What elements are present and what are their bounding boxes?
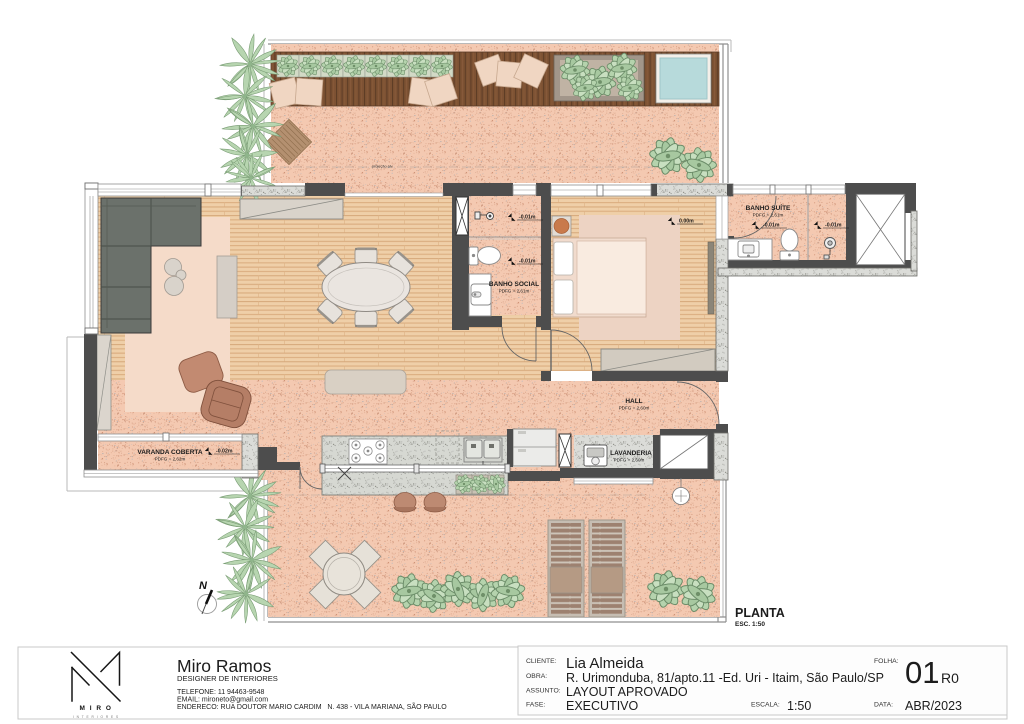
- svg-text:Lia Almeida: Lia Almeida: [566, 655, 644, 672]
- svg-text:PDFG = 2,61m: PDFG = 2,61m: [753, 213, 784, 218]
- svg-text:ESC. 1:50: ESC. 1:50: [735, 621, 765, 628]
- svg-text:-0.01m: -0.01m: [763, 223, 780, 229]
- svg-text:PLANTA: PLANTA: [735, 606, 785, 620]
- svg-text:ABR/2023: ABR/2023: [905, 699, 962, 713]
- svg-text:-0.02m: -0.02m: [216, 449, 233, 455]
- svg-text:TELEFONE: 11 94463-9548: TELEFONE: 11 94463-9548: [177, 689, 265, 696]
- svg-text:01: 01: [905, 655, 939, 690]
- svg-text:-0.01m: -0.01m: [519, 215, 536, 221]
- svg-text:BANHO SUÍTE: BANHO SUÍTE: [746, 203, 791, 212]
- svg-text:PDFG = 2,60m: PDFG = 2,60m: [619, 406, 650, 411]
- svg-text:projeção alv: projeção alv: [372, 165, 393, 169]
- svg-text:ASSUNTO:: ASSUNTO:: [526, 688, 561, 695]
- svg-text:BANHO SOCIAL: BANHO SOCIAL: [489, 281, 539, 288]
- svg-text:DESIGNER DE INTERIORES: DESIGNER DE INTERIORES: [177, 674, 278, 683]
- svg-text:EMAIL: mironeto@gmail.com: EMAIL: mironeto@gmail.com: [177, 697, 268, 704]
- svg-text:R. Urimonduba, 81/apto.11 -Ed.: R. Urimonduba, 81/apto.11 -Ed. Uri - Ita…: [566, 671, 884, 685]
- svg-text:CLIENTE:: CLIENTE:: [526, 658, 557, 665]
- svg-text:1:50: 1:50: [787, 699, 811, 713]
- svg-text:FASE:: FASE:: [526, 702, 545, 709]
- svg-text:OBRA:: OBRA:: [526, 673, 547, 680]
- svg-text:ENDERECO: RUA DOUTOR MARIO CAR: ENDERECO: RUA DOUTOR MARIO CARDIM N. 438…: [177, 702, 447, 711]
- svg-text:LAVANDERIA: LAVANDERIA: [610, 450, 652, 457]
- svg-text:LAYOUT APROVADO: LAYOUT APROVADO: [566, 685, 688, 699]
- svg-text:-0.01m: -0.01m: [519, 259, 536, 265]
- svg-text:FOLHA:: FOLHA:: [874, 658, 899, 665]
- svg-text:R0: R0: [941, 670, 959, 686]
- svg-text:-0.01m: -0.01m: [825, 223, 842, 229]
- svg-text:M I R O: M I R O: [80, 705, 113, 712]
- svg-text:EXECUTIVO: EXECUTIVO: [566, 699, 639, 713]
- svg-text:PDFG = 2,62m: PDFG = 2,62m: [155, 457, 186, 462]
- svg-text:Miro Ramos: Miro Ramos: [177, 656, 272, 676]
- svg-text:0.00m: 0.00m: [679, 219, 694, 225]
- svg-text:I N T E R I O R E S: I N T E R I O R E S: [73, 715, 119, 719]
- svg-text:HALL: HALL: [625, 398, 642, 405]
- svg-text:PDFG = 2,61m: PDFG = 2,61m: [499, 289, 530, 294]
- svg-text:DATA:: DATA:: [874, 702, 893, 709]
- svg-text:PDFG = 2,60m: PDFG = 2,60m: [614, 458, 645, 463]
- svg-text:VARANDA COBERTA: VARANDA COBERTA: [137, 449, 203, 456]
- svg-text:ESCALA:: ESCALA:: [751, 702, 780, 709]
- svg-text:N: N: [199, 580, 208, 592]
